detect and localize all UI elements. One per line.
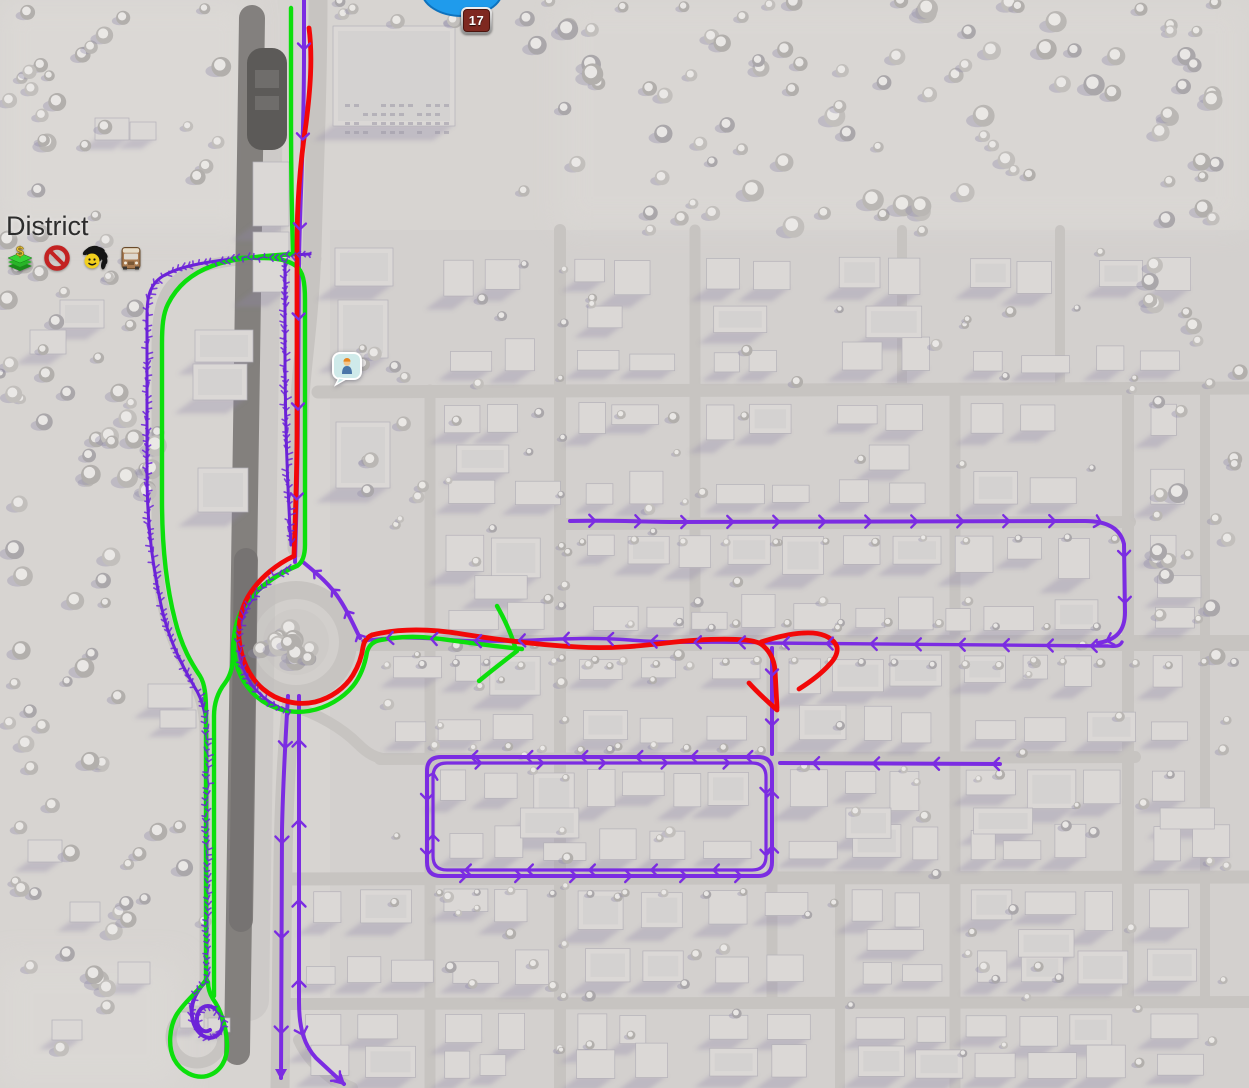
- tax-policy-icon[interactable]: $: [6, 244, 34, 272]
- game-map-view[interactable]: District $: [0, 0, 1249, 1088]
- road-number-badge[interactable]: 17: [461, 7, 492, 34]
- district-policy-row: $: [6, 244, 176, 272]
- ban-policy-icon[interactable]: [43, 244, 71, 272]
- bus-policy-icon[interactable]: [117, 244, 145, 272]
- road-number: 17: [469, 13, 484, 28]
- recreation-policy-icon[interactable]: [80, 244, 108, 272]
- road-number-badge-plate: 17: [463, 9, 490, 32]
- district-overlay[interactable]: District $: [6, 212, 176, 272]
- district-name-label: District: [6, 212, 176, 240]
- dollar-glyph: $: [16, 244, 24, 259]
- citizen-bubble-icon[interactable]: [330, 351, 364, 387]
- city-map-canvas[interactable]: [0, 0, 1249, 1088]
